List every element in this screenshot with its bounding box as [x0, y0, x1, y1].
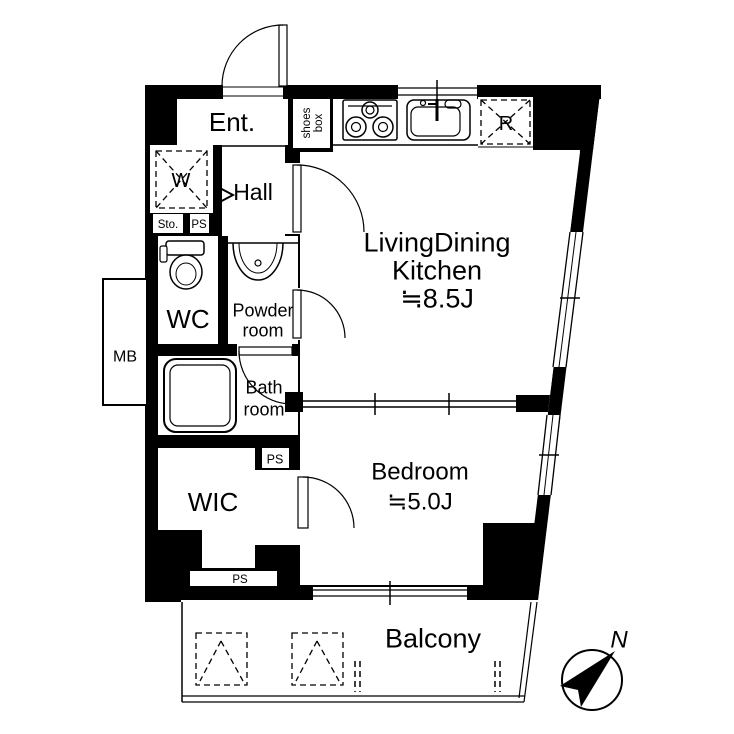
floor-plan-drawing: Ent. shoes box Hall W Sto. PS WC Powder …	[0, 0, 734, 734]
label-storage: Sto.	[158, 219, 178, 231]
label-bedroom-1: Bedroom	[371, 458, 468, 485]
balcony-left-wall-block	[145, 553, 181, 602]
label-hall: Hall	[233, 179, 273, 205]
balcony-hatch-right-icon	[292, 633, 343, 685]
label-ps-mid: PS	[267, 452, 284, 466]
partition-left-stub	[285, 392, 303, 412]
label-washer: W	[172, 170, 191, 192]
label-ldk-2: Kitchen	[392, 255, 482, 285]
label-wic: WIC	[188, 487, 239, 517]
wic-door-leaf	[298, 477, 308, 528]
meter-box	[103, 279, 147, 405]
label-meter-box: MB	[113, 349, 137, 366]
label-bath-2: room	[243, 399, 284, 419]
label-wc: WC	[166, 304, 209, 334]
balcony-hatch-left-icon	[196, 633, 247, 685]
label-ldk-3: ≒8.5J	[400, 283, 474, 313]
label-bedroom-2: ≒5.0J	[387, 488, 453, 515]
sliding-partition	[302, 393, 516, 415]
label-north: N	[610, 626, 628, 653]
bath-door-leaf	[239, 347, 292, 355]
label-refrigerator: R	[499, 113, 513, 135]
top-wall	[145, 85, 601, 99]
compass	[560, 650, 622, 710]
label-ldk-1: LivingDining	[363, 227, 510, 257]
label-powder-1: Powder	[232, 300, 293, 320]
hall-door-leaf	[293, 165, 301, 232]
bedroom-right-wall-block	[483, 523, 547, 600]
label-balcony: Balcony	[385, 623, 482, 653]
floor-plan: Ent. shoes box Hall W Sto. PS WC Powder …	[0, 0, 734, 734]
balcony-partition-marks	[355, 661, 500, 692]
label-ps-top: PS	[191, 219, 207, 231]
powder-door-leaf	[293, 290, 301, 338]
svg-text:box: box	[313, 113, 325, 132]
svg-text:shoes: shoes	[301, 107, 313, 138]
top-right-wall-block	[533, 85, 601, 150]
label-entrance: Ent.	[209, 107, 255, 137]
partition-right-stub	[516, 395, 550, 412]
label-powder-2: room	[242, 320, 283, 340]
entrance-door-leaf	[279, 25, 287, 86]
label-ps-bottom: PS	[232, 574, 248, 586]
kitchen-sink-icon	[407, 99, 470, 140]
wc-powder-divider-wall	[218, 236, 228, 300]
rooms	[103, 85, 580, 586]
entrance-door-arc	[222, 25, 283, 86]
label-bath-1: Bath	[245, 377, 282, 397]
